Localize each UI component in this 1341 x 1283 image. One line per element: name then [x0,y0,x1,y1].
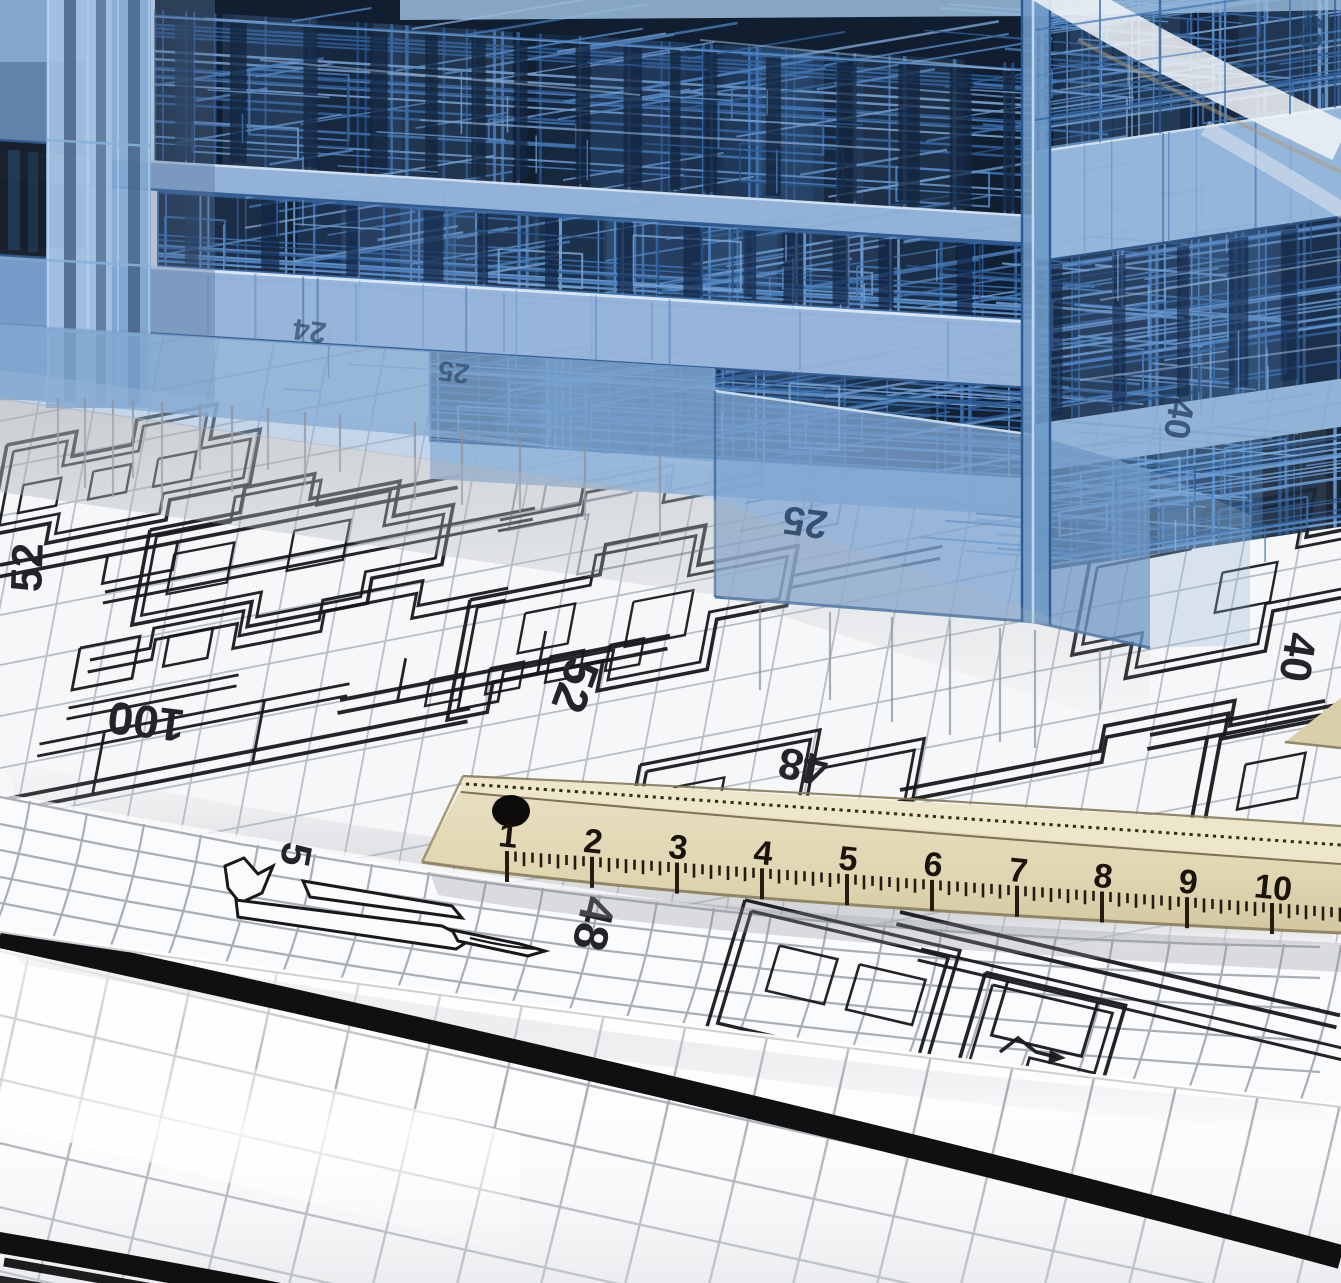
svg-text:8: 8 [1092,857,1115,897]
svg-text:4: 4 [752,834,775,874]
svg-text:100: 100 [105,691,188,752]
svg-text:1: 1 [497,816,520,856]
svg-text:5: 5 [837,839,860,879]
svg-text:25: 25 [436,355,471,390]
svg-text:10: 10 [1252,867,1294,909]
svg-text:25: 25 [780,497,830,547]
svg-text:24: 24 [291,312,329,349]
svg-text:7: 7 [1007,851,1030,891]
svg-text:3: 3 [667,828,690,868]
svg-text:6: 6 [922,845,945,885]
svg-text:40: 40 [1156,396,1203,443]
svg-text:40: 40 [1269,629,1325,685]
svg-text:52: 52 [2,542,53,593]
svg-text:40: 40 [1289,8,1333,52]
svg-text:9: 9 [1177,862,1200,902]
svg-text:48: 48 [774,737,832,795]
svg-text:2: 2 [582,822,605,862]
